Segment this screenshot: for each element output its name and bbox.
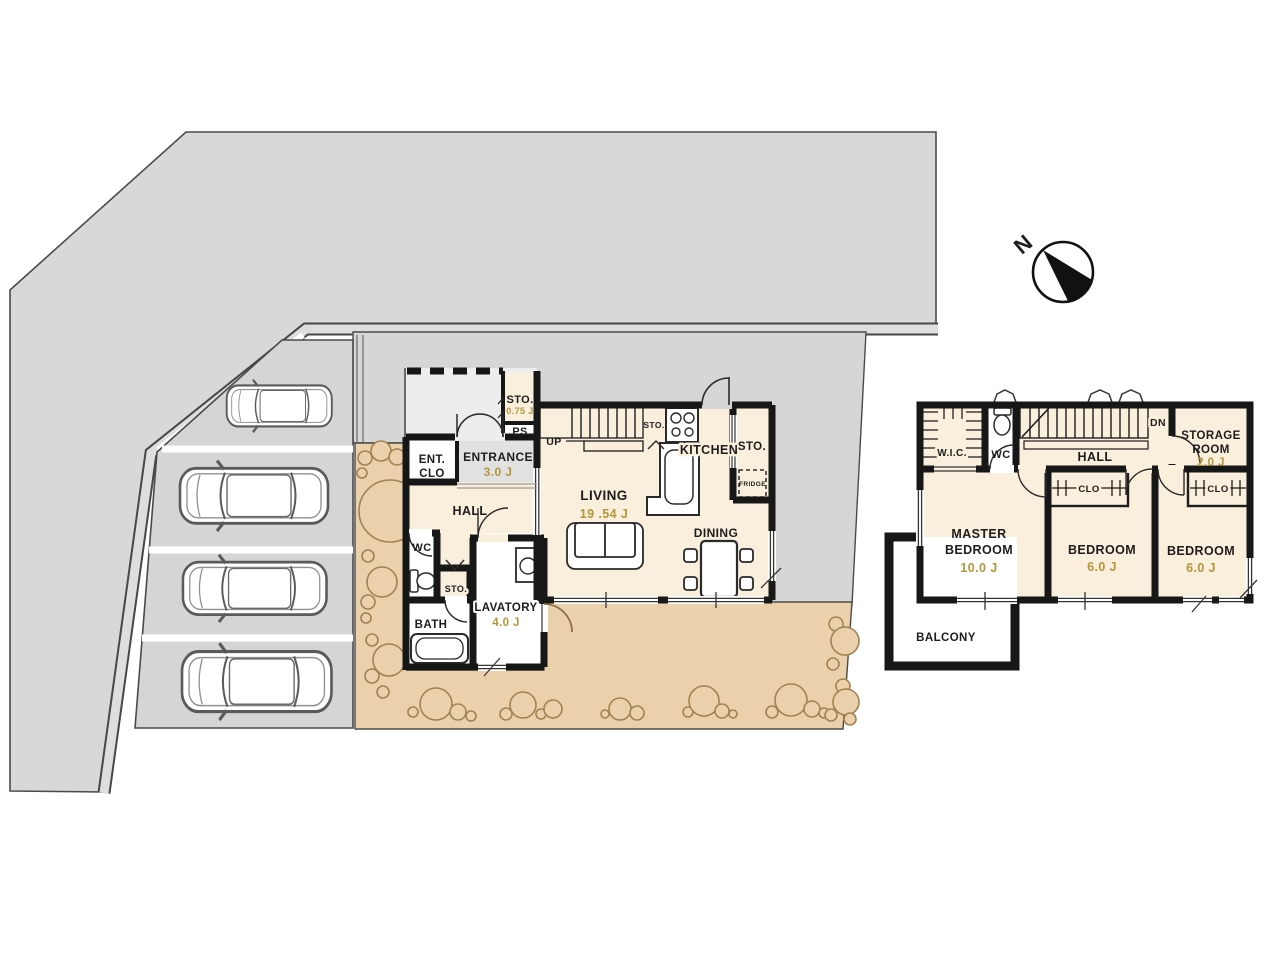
label-clo-right: CLO [1207,484,1228,495]
floorplan-canvas: N STO. 0.75 J PS UP ENT. CLO ENTRANCE 3.… [0,0,1280,960]
car-1 [227,380,332,432]
area-entrance: 3.0 J [484,465,513,479]
label-sto-porch: STO. [506,394,533,406]
stove [666,408,698,442]
label-sto-hall: STO. [445,584,467,594]
label-kitchen: KITCHEN [680,443,738,457]
area-living: 19 .54 J [580,507,628,521]
label-storage-2: ROOM [1192,444,1229,456]
label-sto-stair: STO. [643,420,664,430]
label-dining: DINING [694,526,738,540]
car-3 [183,555,327,622]
label-hall-1f: HALL [453,504,488,518]
area-bedroom-center: 6.0 J [1087,560,1117,574]
area-storage: 2.0 J [1197,457,1225,469]
label-master-1: MASTER [951,527,1006,541]
compass-north-label: N [1009,229,1038,259]
label-sto-kitchen: STO. [738,441,766,453]
label-balcony: BALCONY [916,632,976,644]
label-master-2: BEDROOM [945,543,1013,557]
label-hall-2f: HALL [1078,450,1113,464]
label-bedroom-right: BEDROOM [1167,544,1235,558]
label-storage-1: STORAGE [1181,430,1240,442]
car-2 [180,461,328,531]
label-entrance: ENTRANCE [463,450,533,464]
label-bath: BATH [415,619,448,631]
area-sto-porch: 0.75 J [506,406,533,416]
label-fridge: FRIDGE [739,481,766,488]
label-lavatory: LAVATORY [474,602,537,614]
toilet-2f [994,408,1011,435]
label-living: LIVING [580,488,627,503]
label-dn: DN [1150,417,1166,429]
label-entclo-1: ENT. [419,454,446,466]
floorplan-page: N STO. 0.75 J PS UP ENT. CLO ENTRANCE 3.… [0,0,1280,960]
label-ps: PS [512,426,527,438]
compass: N [1009,229,1093,302]
area-bedroom-right: 6.0 J [1186,561,1216,575]
sofa [567,523,643,569]
stairs-2f [1020,406,1148,449]
label-entclo-2: CLO [419,468,444,480]
label-wc-2f: WC [991,449,1010,461]
label-bedroom-center: BEDROOM [1068,543,1136,557]
label-wc-1f: WC [412,542,431,554]
area-master: 10.0 J [960,561,997,575]
label-up: UP [546,436,561,448]
bathtub [411,634,468,663]
label-wic: W.I.C. [937,448,967,459]
label-clo-left: CLO [1078,484,1099,495]
area-lavatory: 4.0 J [492,617,520,629]
hall-corridor-floor [437,533,473,568]
car-4 [182,643,331,720]
